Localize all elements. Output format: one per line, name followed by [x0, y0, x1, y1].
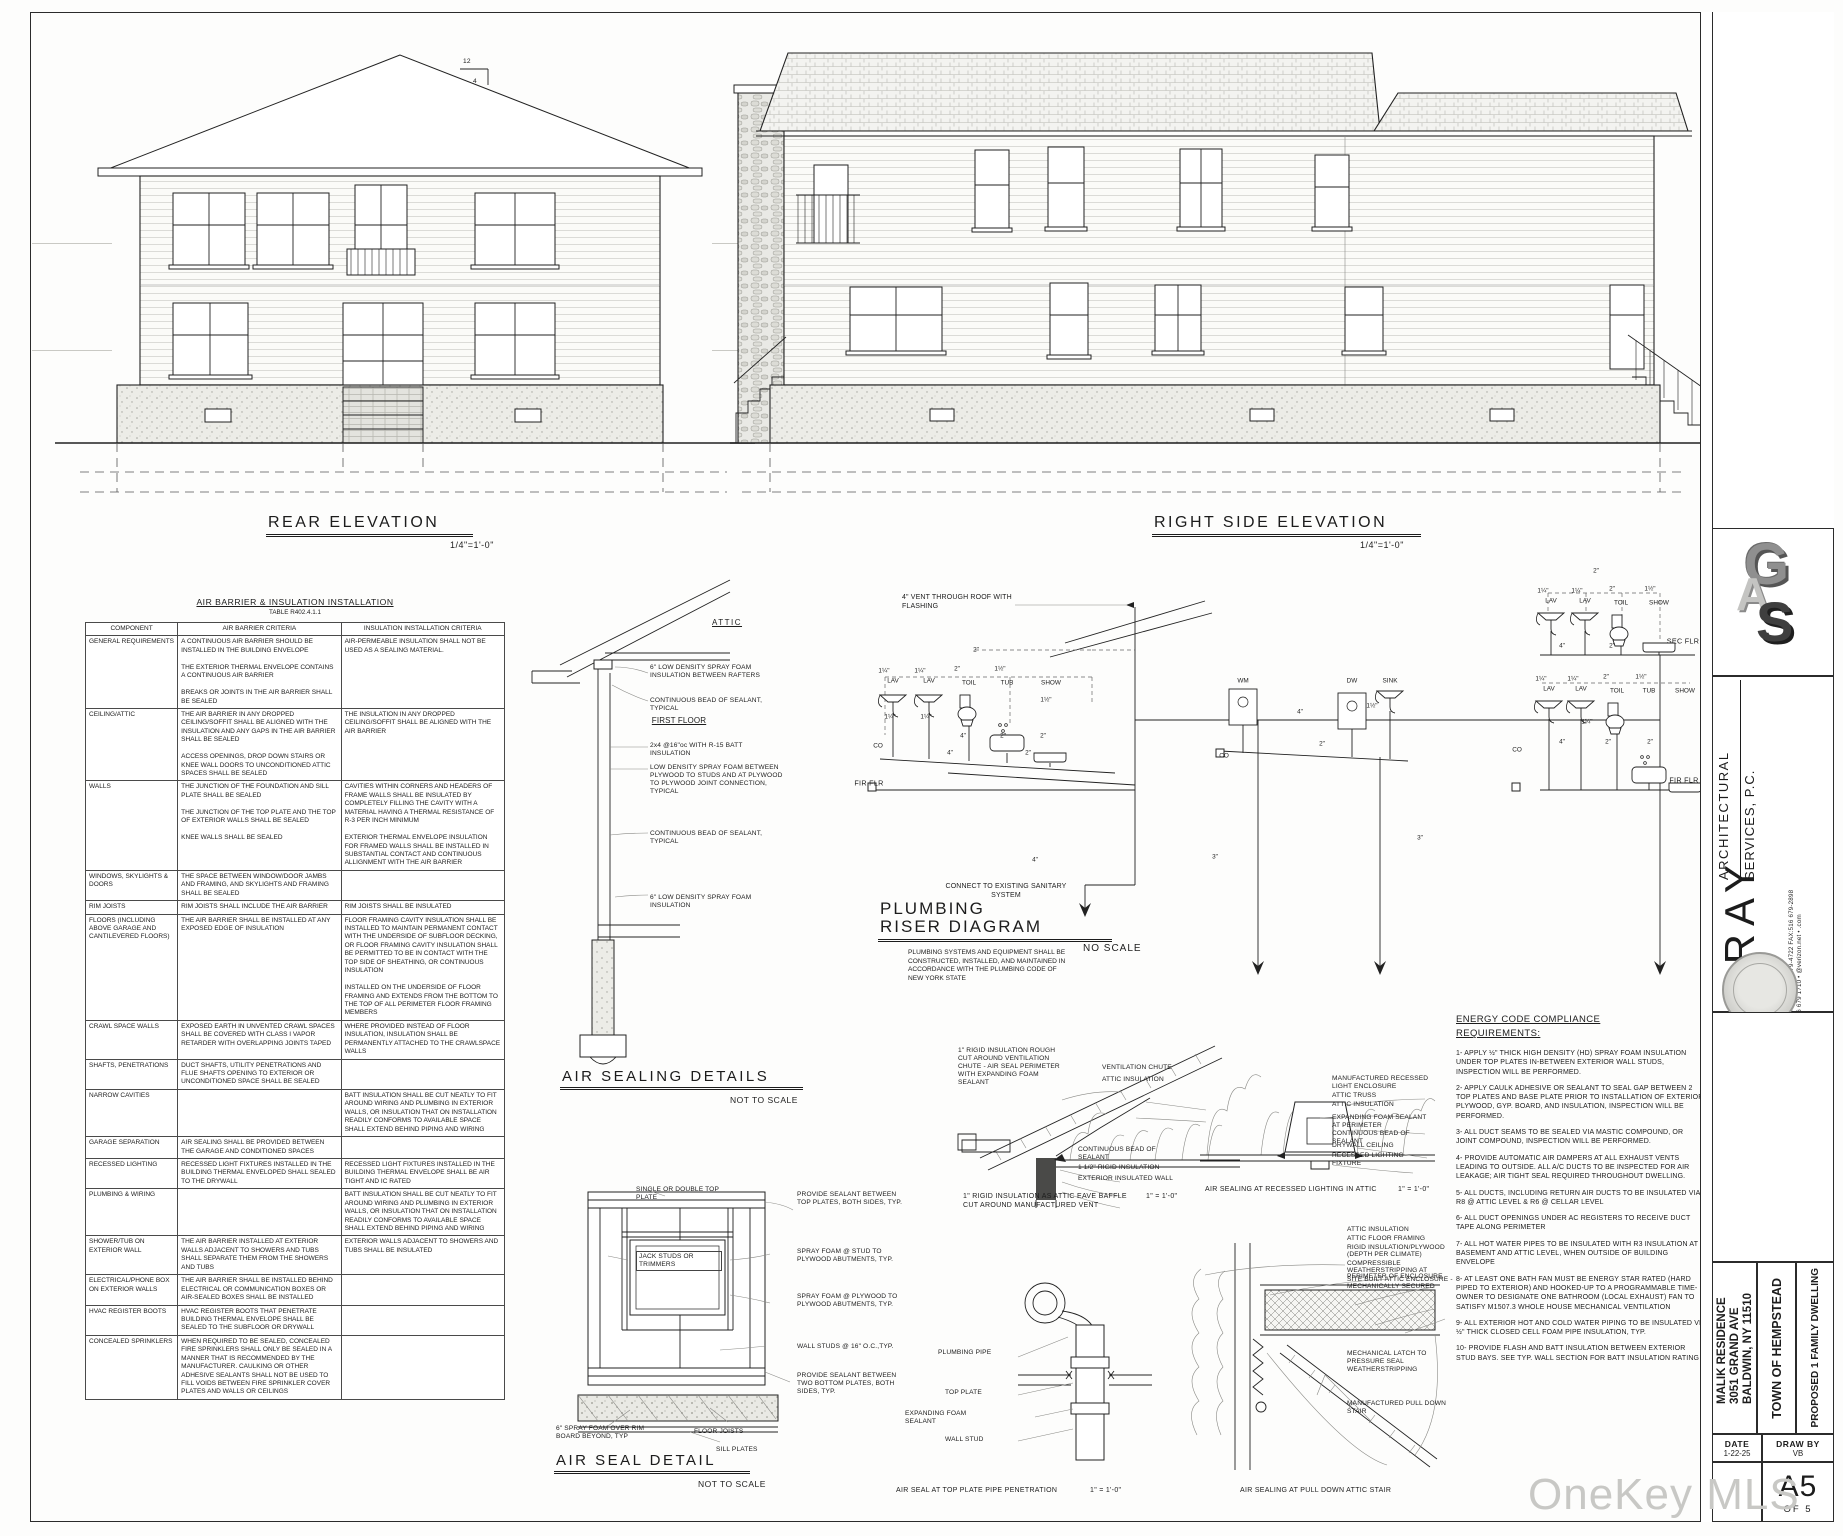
- drawby-label: DRAW BY: [1776, 1439, 1820, 1449]
- riser-annotation: SHOW: [1041, 680, 1061, 687]
- date-value: 1-22-25: [1724, 1449, 1751, 1458]
- spec-table-row: RIM JOISTSRIM JOISTS SHALL INCLUDE THE A…: [86, 901, 505, 914]
- riser-annotation: 1¼": [1537, 588, 1548, 595]
- list-item: 8- AT LEAST ONE BATH FAN MUST BE ENERGY …: [1456, 1275, 1706, 1312]
- detail-label: WALL STUDS @ 16" O.C.,TYP.: [797, 1343, 909, 1351]
- detail-label: CONTINUOUS BEAD OF SEALANT, TYPICAL: [650, 697, 775, 713]
- project-description-box: PROPOSED 1 FAMILY DWELLING: [1796, 1262, 1834, 1434]
- riser-annotation: 2": [973, 647, 979, 654]
- list-item: 5- ALL DUCTS, INCLUDING RETURN AIR DUCTS…: [1456, 1189, 1706, 1208]
- detail-label: RECESSED LIGHTING FIXTURE: [1332, 1152, 1428, 1168]
- riser-annotation: LAV: [923, 678, 935, 685]
- spec-table-cell: THE JUNCTION OF THE FOUNDATION AND SILL …: [178, 781, 341, 870]
- detail-label: PROVIDE SEALANT BETWEEN TOP PLATES, BOTH…: [797, 1191, 909, 1207]
- riser-annotation: TUB: [1643, 688, 1656, 695]
- spec-table-row: SHOWER/TUB ON EXTERIOR WALLTHE AIR BARRI…: [86, 1236, 505, 1275]
- spec-table-cell: RECESSED LIGHTING: [86, 1158, 178, 1188]
- spec-table-cell: AIR-PERMEABLE INSULATION SHALL NOT BE US…: [341, 636, 504, 709]
- riser-annotation: 1¼": [1581, 719, 1592, 726]
- attic-label: ATTIC: [712, 618, 742, 628]
- stair-detail-caption: AIR SEALING AT PULL DOWN ATTIC STAIR: [1240, 1487, 1450, 1496]
- riser-annotation: 1½": [1040, 697, 1051, 704]
- firm-line2: SERVICES, P.C.: [1742, 688, 1764, 880]
- list-item: 1- APPLY ½" THICK HIGH DENSITY (HD) SPRA…: [1456, 1049, 1706, 1077]
- riser-annotation: 3": [1212, 854, 1218, 861]
- detail-label: MANUFACTURED PULL DOWN STAIR: [1347, 1400, 1459, 1416]
- riser-annotation: 1¼": [878, 668, 889, 675]
- spec-table-cell: FLOOR FRAMING CAVITY INSULATION SHALL BE…: [341, 914, 504, 1020]
- list-item: 9- ALL EXTERIOR HOT AND COLD WATER PIPIN…: [1456, 1319, 1706, 1338]
- riser-annotation: TOIL: [1614, 600, 1628, 607]
- air-barrier-table-subtitle: TABLE R402.4.1.1: [85, 609, 505, 616]
- spec-table-cell: THE SPACE BETWEEN WINDOW/DOOR JAMBS AND …: [178, 870, 341, 900]
- riser-annotation: 1¼": [1535, 676, 1546, 683]
- spec-table-cell: [341, 1275, 504, 1305]
- riser-annotation: 2": [1040, 733, 1046, 740]
- riser-annotation: LAV: [1543, 686, 1555, 693]
- detail-label: ATTIC FLOOR FRAMING: [1347, 1236, 1457, 1243]
- spec-table-cell: [178, 1089, 341, 1136]
- energy-code-subtitle: REQUIREMENTS:: [1456, 1028, 1706, 1039]
- spec-table-cell: EXTERIOR WALLS ADJACENT TO SHOWERS AND T…: [341, 1236, 504, 1275]
- spec-table-cell: RECESSED LIGHT FIXTURES INSTALLED IN THE…: [178, 1158, 341, 1188]
- spec-table-row: ELECTRICAL/PHONE BOX ON EXTERIOR WALLSTH…: [86, 1275, 505, 1305]
- riser-annotation: FIR FLR: [854, 779, 883, 788]
- spec-table-cell: THE AIR BARRIER IN ANY DROPPED CEILING/S…: [178, 708, 341, 781]
- riser-annotation: 1½": [994, 666, 1005, 673]
- eave-detail-caption: 1" RIGID INSULATION AS ATTIC EAVE BAFFLE…: [963, 1193, 1135, 1211]
- detail-label: EXTERIOR INSULATED WALL: [1078, 1175, 1178, 1183]
- riser-annotation: 1¼": [1567, 676, 1578, 683]
- riser-annotation: SHOW: [1675, 688, 1695, 695]
- connect-sanitary-label: CONNECT TO EXISTING SANITARY SYSTEM: [942, 883, 1070, 900]
- gray-architectural-logo: G A S: [1736, 541, 1810, 663]
- spec-table-row: GENERAL REQUIREMENTSA CONTINUOUS AIR BAR…: [86, 636, 505, 709]
- riser-annotation: 1½": [1366, 703, 1377, 710]
- firm-logo-box: G A S: [1712, 528, 1834, 676]
- riser-annotation: 4": [1559, 739, 1565, 746]
- detail-label: 1" RIGID INSULATION ROUGH CUT AROUND VEN…: [958, 1047, 1062, 1087]
- spec-table-row: CEILING/ATTICTHE AIR BARRIER IN ANY DROP…: [86, 708, 505, 781]
- riser-annotation: CO: [1512, 747, 1522, 754]
- detail-label: 2x4 @16"oc WITH R-15 BATT INSULATION: [650, 742, 780, 758]
- recessed-detail-caption: AIR SEALING AT RECESSED LIGHTING IN ATTI…: [1205, 1186, 1391, 1195]
- riser-annotation: FIR FLR: [1669, 776, 1698, 785]
- riser-annotation: 2": [1319, 741, 1325, 748]
- riser-annotation: WM: [1237, 678, 1248, 685]
- firm-line1: ARCHITECTURAL: [1716, 680, 1741, 880]
- riser-annotation: SEC FLR: [1667, 637, 1699, 646]
- riser-annotation: SHOW: [1649, 600, 1669, 607]
- riser-annotation: 2": [1647, 739, 1653, 746]
- riser-annotation: 1¼": [920, 714, 931, 721]
- detail-label: 6" LOW DENSITY SPRAY FOAM INSULATION BET…: [650, 664, 792, 680]
- detail-label: SPRAY FOAM @ STUD TO PLYWOOD ABUTMENTS, …: [797, 1248, 909, 1264]
- energy-code-items: 1- APPLY ½" THICK HIGH DENSITY (HD) SPRA…: [1456, 1049, 1706, 1363]
- detail-label: CONTINUOUS BEAD OF SEALANT: [1078, 1146, 1170, 1162]
- spec-table-cell: [341, 1059, 504, 1089]
- drawby-box: DRAW BY VB: [1762, 1434, 1834, 1462]
- riser-annotation: 2": [1605, 739, 1611, 746]
- spec-table-row: GARAGE SEPARATIONAIR SEALING SHALL BE PR…: [86, 1137, 505, 1159]
- drawby-value: VB: [1793, 1449, 1803, 1458]
- riser-annotation: 1¼": [884, 714, 895, 721]
- riser-annotation: TUB: [1001, 680, 1014, 687]
- list-item: 6- ALL DUCT OPENINGS UNDER AC REGISTERS …: [1456, 1214, 1706, 1233]
- spec-table-cell: CEILING/ATTIC: [86, 708, 178, 781]
- detail-label: 6" LOW DENSITY SPRAY FOAM INSULATION: [650, 894, 780, 910]
- energy-code-notes: ENERGY CODE COMPLIANCE REQUIREMENTS: 1- …: [1456, 1014, 1706, 1370]
- spec-table-cell: A CONTINUOUS AIR BARRIER SHOULD BE INSTA…: [178, 636, 341, 709]
- riser-annotation: 2": [954, 666, 960, 673]
- spec-table-cell: DUCT SHAFTS, UTILITY PENETRATIONS AND FL…: [178, 1059, 341, 1089]
- riser-annotation: LAV: [887, 678, 899, 685]
- riser-annotation: CO: [1219, 753, 1229, 760]
- spec-table-cell: FLOORS (INCLUDING ABOVE GARAGE AND CANTI…: [86, 914, 178, 1020]
- air-sealing-section-drawing: [520, 495, 730, 1105]
- spec-table-row: CONCEALED SPRINKLERSWHEN REQUIRED TO BE …: [86, 1335, 505, 1399]
- spec-table-row: NARROW CAVITIESBATT INSULATION SHALL BE …: [86, 1089, 505, 1136]
- spec-table-cell: CONCEALED SPRINKLERS: [86, 1335, 178, 1399]
- air-sealing-details-title: AIR SEALING DETAILS: [560, 1068, 803, 1090]
- spec-table-cell: AIR SEALING SHALL BE PROVIDED BETWEEN TH…: [178, 1137, 341, 1159]
- spec-table-cell: HVAC REGISTER BOOTS: [86, 1305, 178, 1335]
- riser-annotation: 2": [1000, 733, 1006, 740]
- spec-table-cell: THE AIR BARRIER SHALL BE INSTALLED AT AN…: [178, 914, 341, 1020]
- spec-table-cell: BATT INSULATION SHALL BE CUT NEATLY TO F…: [341, 1189, 504, 1236]
- riser-annotation: 1¼": [1571, 588, 1582, 595]
- riser-annotation: 4": [1032, 857, 1038, 864]
- detail-label: MECHANICAL LATCH TO PRESSURE SEAL WEATHE…: [1347, 1350, 1459, 1374]
- detail-label: TOP PLATE: [945, 1389, 997, 1397]
- air-seal-detail-drawing: [570, 1180, 790, 1440]
- spec-table-cell: THE AIR BARRIER INSTALLED AT EXTERIOR WA…: [178, 1236, 341, 1275]
- air-seal-detail-title: AIR SEAL DETAIL: [554, 1452, 750, 1474]
- detail-label: WALL STUD: [945, 1436, 997, 1444]
- riser-annotation: 2": [1609, 586, 1615, 593]
- right-side-elevation-drawing: [730, 35, 1710, 510]
- spec-table-row: HVAC REGISTER BOOTSHVAC REGISTER BOOTS T…: [86, 1305, 505, 1335]
- spec-table-row: PLUMBING & WIRINGBATT INSULATION SHALL B…: [86, 1189, 505, 1236]
- detail-label: ATTIC INSULATION: [1347, 1227, 1457, 1234]
- riser-annotation: DW: [1347, 678, 1358, 685]
- first-floor-label: FIRST FLOOR: [648, 716, 710, 727]
- roof-pitch-rise: 12: [463, 58, 471, 66]
- project-description: PROPOSED 1 FAMILY DWELLING: [1810, 1268, 1821, 1427]
- pipe-detail-caption: AIR SEAL AT TOP PLATE PIPE PENETRATION: [896, 1487, 1081, 1496]
- spec-table-row: FLOORS (INCLUDING ABOVE GARAGE AND CANTI…: [86, 914, 505, 1020]
- municipality-box: TOWN OF HEMPSTEAD: [1757, 1262, 1796, 1434]
- plumbing-riser-title: PLUMBINGRISER DIAGRAM: [878, 900, 1112, 942]
- detail-label: PLUMBING PIPE: [938, 1349, 996, 1357]
- list-item: 10- PROVIDE FLASH AND BATT INSULATION BE…: [1456, 1344, 1706, 1363]
- rear-elevation-scale: 1/4"=1'-0": [450, 540, 494, 550]
- spec-table-cell: PLUMBING & WIRING: [86, 1189, 178, 1236]
- spec-table-cell: [341, 1305, 504, 1335]
- spec-table-cell: RIM JOISTS: [86, 901, 178, 914]
- air-barrier-table-title: AIR BARRIER & INSULATION INSTALLATION: [85, 597, 505, 607]
- roof-pitch-run: 4: [473, 78, 477, 86]
- spec-table-cell: RIM JOISTS SHALL INCLUDE THE AIR BARRIER: [178, 901, 341, 914]
- spec-table-row: SHAFTS, PENETRATIONSDUCT SHAFTS, UTILITY…: [86, 1059, 505, 1089]
- rear-elevation-drawing: [55, 35, 755, 510]
- detail-label: EXPANDING FOAM SEALANT: [905, 1410, 975, 1426]
- plumbing-riser-note: PLUMBING SYSTEMS AND EQUIPMENT SHALL BE …: [908, 949, 1066, 983]
- riser-annotation: SINK: [1383, 678, 1398, 685]
- firm-contact-email: 516 679 1710 • @verizon.net • .com: [1796, 690, 1810, 1020]
- energy-code-title: ENERGY CODE COMPLIANCE: [1456, 1014, 1706, 1025]
- spec-table-cell: [341, 1335, 504, 1399]
- riser-annotation: 2": [1593, 568, 1599, 575]
- air-barrier-table: COMPONENTAIR BARRIER CRITERIAINSULATION …: [85, 622, 505, 1400]
- riser-annotation: CO: [873, 743, 883, 750]
- spec-table-cell: GENERAL REQUIREMENTS: [86, 636, 178, 709]
- detail-label: ATTIC TRUSS: [1332, 1092, 1440, 1100]
- spec-table-row: WALLSTHE JUNCTION OF THE FOUNDATION AND …: [86, 781, 505, 870]
- project-client: MALIK RESIDENCE: [1716, 1293, 1728, 1404]
- spec-table-cell: THE AIR BARRIER SHALL BE INSTALLED BEHIN…: [178, 1275, 341, 1305]
- riser-annotation: 4": [1297, 709, 1303, 716]
- spec-column-header: COMPONENT: [86, 623, 178, 636]
- riser-annotation: 2": [1025, 750, 1031, 757]
- detail-label: 6" SPRAY FOAM OVER RIM BOARD BEYOND, TYP: [556, 1425, 648, 1441]
- riser-annotation: LAV: [1579, 598, 1591, 605]
- detail-label: SPRAY FOAM @ PLYWOOD TO PLYWOOD ABUTMENT…: [797, 1293, 915, 1309]
- air-seal-detail-scale: NOT TO SCALE: [698, 1479, 766, 1489]
- spec-table-cell: SHOWER/TUB ON EXTERIOR WALL: [86, 1236, 178, 1275]
- project-address1: 3051 GRAND AVE: [1729, 1293, 1741, 1404]
- air-sealing-details-scale: NOT TO SCALE: [730, 1095, 798, 1105]
- detail-label: ATTIC INSULATION: [1102, 1076, 1192, 1084]
- spec-table-cell: [178, 1189, 341, 1236]
- rear-elevation-title: REAR ELEVATION: [266, 514, 473, 537]
- detail-label: VENTILATION CHUTE: [1102, 1064, 1192, 1072]
- logo-letter-s: S: [1756, 589, 1793, 654]
- plumbing-riser-scale: NO SCALE: [1083, 943, 1142, 954]
- spec-table-cell: ELECTRICAL/PHONE BOX ON EXTERIOR WALLS: [86, 1275, 178, 1305]
- spec-table-cell: WINDOWS, SKYLIGHTS & DOORS: [86, 870, 178, 900]
- spec-table-cell: HVAC REGISTER BOOTS THAT PENETRATE BUILD…: [178, 1305, 341, 1335]
- date-label: DATE: [1725, 1439, 1750, 1449]
- spec-table-cell: RIM JOISTS SHALL BE INSULATED: [341, 901, 504, 914]
- detail-label: CONTINUOUS BEAD OF SEALANT, TYPICAL: [650, 830, 775, 846]
- spec-table-cell: GARAGE SEPARATION: [86, 1137, 178, 1159]
- riser-annotation: TOIL: [1610, 688, 1624, 695]
- riser-annotation: 2": [1609, 643, 1615, 650]
- riser-annotation: TOIL: [962, 680, 976, 687]
- riser-annotation: 4": [960, 733, 966, 740]
- riser-annotation: 3": [1417, 835, 1423, 842]
- spec-table-cell: EXPOSED EARTH IN UNVENTED CRAWL SPACES S…: [178, 1020, 341, 1059]
- riser-annotation: LAV: [1575, 686, 1587, 693]
- spec-table-cell: WHERE PROVIDED INSTEAD OF FLOOR INSULATI…: [341, 1020, 504, 1059]
- riser-annotation: 1½": [1644, 586, 1655, 593]
- municipality: TOWN OF HEMPSTEAD: [1770, 1278, 1784, 1419]
- empty-title-box: [1712, 1012, 1834, 1262]
- spec-column-header: AIR BARRIER CRITERIA: [178, 623, 341, 636]
- detail-label: MANUFACTURED RECESSED LIGHT ENCLOSURE: [1332, 1075, 1440, 1091]
- riser-annotation: 1¼": [914, 668, 925, 675]
- detail-label: FLOOR JOISTS: [694, 1428, 756, 1436]
- list-item: 4- PROVIDE AUTOMATIC AIR DAMPERS AT ALL …: [1456, 1154, 1706, 1182]
- spec-column-header: INSULATION INSTALLATION CRITERIA: [341, 623, 504, 636]
- spec-table-row: RECESSED LIGHTINGRECESSED LIGHT FIXTURES…: [86, 1158, 505, 1188]
- spec-table-cell: CAVITIES WITHIN CORNERS AND HEADERS OF F…: [341, 781, 504, 870]
- spec-table-cell: BATT INSULATION SHALL BE CUT NEATLY TO F…: [341, 1089, 504, 1136]
- spec-table-cell: WHEN REQUIRED TO BE SEALED, CONCEALED FI…: [178, 1335, 341, 1399]
- spec-table-cell: [341, 870, 504, 900]
- spec-table-cell: RECESSED LIGHT FIXTURES INSTALLED IN THE…: [341, 1158, 504, 1188]
- riser-annotation: 1½": [1635, 674, 1646, 681]
- list-item: 7- ALL HOT WATER PIPES TO BE INSULATED W…: [1456, 1240, 1706, 1268]
- riser-annotation: 2": [1603, 674, 1609, 681]
- detail-label: 1 1/2" RIGID INSULATION: [1078, 1164, 1178, 1172]
- sheet-canvas: 12 4 REAR ELEVATION 1/4"=1'-0": [0, 0, 1843, 1536]
- list-item: 3- ALL DUCT SEAMS TO BE SEALED VIA MASTI…: [1456, 1128, 1706, 1147]
- recessed-detail-scale: 1" = 1'-0": [1398, 1186, 1429, 1195]
- spec-table-cell: THE INSULATION IN ANY DROPPED CEILING/SO…: [341, 708, 504, 781]
- right-side-elevation-scale: 1/4"=1'-0": [1360, 540, 1404, 550]
- onekey-mls-watermark: OneKey MLS: [1528, 1470, 1800, 1520]
- riser-annotation: 4": [1559, 643, 1565, 650]
- project-client-box: MALIK RESIDENCE 3051 GRAND AVE BALDWIN, …: [1712, 1262, 1757, 1434]
- list-item: 2- APPLY CAULK ADHESIVE OR SEALANT TO SE…: [1456, 1084, 1706, 1121]
- spec-table-cell: NARROW CAVITIES: [86, 1089, 178, 1136]
- detail-label: SINGLE OR DOUBLE TOP PLATE: [636, 1186, 728, 1202]
- project-address2: BALDWIN, NY 11510: [1742, 1293, 1754, 1404]
- date-box: DATE 1-22-25: [1712, 1434, 1762, 1462]
- riser-annotation: LAV: [1545, 598, 1557, 605]
- pipe-penetration-detail-drawing: [1000, 1265, 1160, 1485]
- spec-table-row: WINDOWS, SKYLIGHTS & DOORSTHE SPACE BETW…: [86, 870, 505, 900]
- right-side-elevation-title: RIGHT SIDE ELEVATION: [1152, 514, 1421, 537]
- detail-label: LOW DENSITY SPRAY FOAM BETWEEN PLYWOOD T…: [650, 764, 785, 796]
- detail-label: JACK STUDS OR TRIMMERS: [636, 1251, 722, 1271]
- plumbing-riser-drawing: [860, 585, 1710, 1005]
- vent-through-roof-label: 4" VENT THROUGH ROOF WITH FLASHING: [902, 594, 1020, 611]
- riser-annotation: 4": [947, 750, 953, 757]
- spec-table-cell: WALLS: [86, 781, 178, 870]
- spec-table-cell: CRAWL SPACE WALLS: [86, 1020, 178, 1059]
- spec-table-cell: [341, 1137, 504, 1159]
- detail-label: ATTIC INSULATION: [1332, 1101, 1440, 1109]
- spec-table-cell: SHAFTS, PENETRATIONS: [86, 1059, 178, 1089]
- detail-label: SITE BUILT ATTIC ENCLOSURE - MECHANICALL…: [1347, 1277, 1459, 1290]
- detail-label: EXPANDING FOAM SEALANT AT PERIMETER: [1332, 1114, 1436, 1130]
- detail-label: PROVIDE SEALANT BETWEEN TWO BOTTOM PLATE…: [797, 1372, 909, 1396]
- spec-table-row: CRAWL SPACE WALLSEXPOSED EARTH IN UNVENT…: [86, 1020, 505, 1059]
- eave-detail-scale: 1" = 1'-0": [1146, 1193, 1177, 1202]
- detail-label: DRYWALL CEILING: [1332, 1142, 1428, 1150]
- pipe-detail-scale: 1" = 1'-0": [1090, 1487, 1121, 1496]
- detail-label: RIGID INSULATION/PLYWOOD (DEPTH PER CLIM…: [1347, 1245, 1459, 1258]
